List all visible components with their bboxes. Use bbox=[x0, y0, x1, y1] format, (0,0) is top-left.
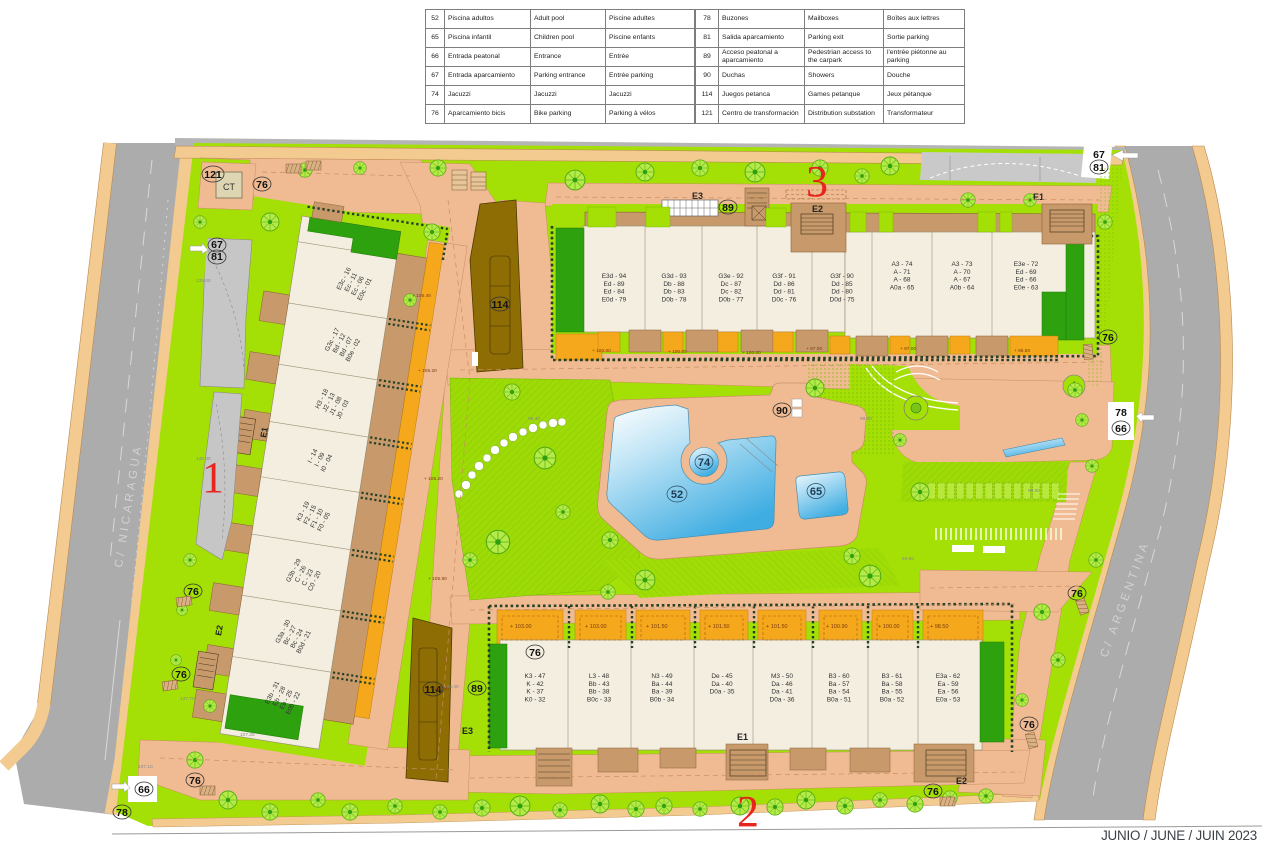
svg-text:+ 101.50: + 101.50 bbox=[646, 624, 668, 630]
svg-text:E2: E2 bbox=[812, 204, 823, 214]
svg-text:76: 76 bbox=[1102, 332, 1114, 344]
svg-text:99.40: 99.40 bbox=[528, 416, 540, 422]
svg-text:+ 98.50: + 98.50 bbox=[930, 624, 949, 630]
svg-text:76: 76 bbox=[529, 647, 541, 659]
svg-text:99.00: 99.00 bbox=[860, 416, 872, 422]
svg-text:67: 67 bbox=[1093, 149, 1105, 161]
svg-text:78: 78 bbox=[116, 807, 128, 819]
svg-text:+ 100.00: + 100.00 bbox=[878, 624, 900, 630]
svg-text:M3 - 50Da - 46Da - 41D0a - 36: M3 - 50Da - 46Da - 41D0a - 36 bbox=[770, 673, 795, 703]
svg-text:N3 - 49Ba - 44Ba - 39B0b - 34: N3 - 49Ba - 44Ba - 39B0b - 34 bbox=[650, 673, 675, 703]
svg-text:+ 103.00: + 103.00 bbox=[585, 624, 607, 630]
svg-text:90: 90 bbox=[776, 405, 788, 417]
svg-text:99.00: 99.00 bbox=[1028, 488, 1040, 494]
svg-text:E3: E3 bbox=[462, 726, 473, 736]
svg-text:+ 100.90: + 100.90 bbox=[826, 624, 848, 630]
svg-text:+ 95.50: + 95.50 bbox=[1014, 348, 1030, 354]
svg-text:+ 105.40: + 105.40 bbox=[412, 293, 431, 299]
svg-text:E3: E3 bbox=[692, 191, 703, 201]
svg-text:76: 76 bbox=[927, 786, 939, 798]
svg-text:+ 100.00: + 100.00 bbox=[668, 349, 687, 355]
svg-text:G3d - 93Db - 88Db - 83D0b - 78: G3d - 93Db - 88Db - 83D0b - 78 bbox=[661, 273, 687, 303]
svg-text:K3 - 47K - 42K - 37K0 - 32: K3 - 47K - 42K - 37K0 - 32 bbox=[525, 673, 546, 703]
svg-text:+ 100.00: + 100.00 bbox=[592, 348, 611, 354]
svg-text:E3e - 72Ed - 69Ed - 66E0e - 63: E3e - 72Ed - 69Ed - 66E0e - 63 bbox=[1014, 261, 1039, 291]
svg-text:G3f - 91Dd - 86Dd - 81D0c - 76: G3f - 91Dd - 86Dd - 81D0c - 76 bbox=[772, 273, 797, 303]
svg-text:137.10: 137.10 bbox=[138, 764, 153, 770]
svg-text:B3 - 60Ba - 57Ba - 54B0a - 51: B3 - 60Ba - 57Ba - 54B0a - 51 bbox=[827, 673, 852, 703]
svg-text:107.25: 107.25 bbox=[240, 732, 255, 738]
svg-text:B3 - 61Ba - 58Ba - 55B0a - 52: B3 - 61Ba - 58Ba - 55B0a - 52 bbox=[880, 673, 905, 703]
svg-text:121: 121 bbox=[204, 169, 222, 181]
svg-text:G3e - 92Dc - 87Dc - 82D0b - 77: G3e - 92Dc - 87Dc - 82D0b - 77 bbox=[718, 273, 744, 303]
svg-text:76: 76 bbox=[1071, 588, 1083, 600]
svg-text:+ 101.50: + 101.50 bbox=[708, 624, 730, 630]
svg-text:E3d - 94Ed - 89Ed - 84E0d - 79: E3d - 94Ed - 89Ed - 84E0d - 79 bbox=[602, 273, 627, 303]
svg-text:81: 81 bbox=[211, 251, 223, 263]
svg-text:2: 2 bbox=[737, 787, 759, 836]
svg-text:89: 89 bbox=[471, 683, 483, 695]
svg-text:+ 103.00: + 103.00 bbox=[510, 624, 532, 630]
svg-text:89: 89 bbox=[722, 202, 734, 214]
svg-text:76: 76 bbox=[256, 179, 268, 191]
svg-text:135.00: 135.00 bbox=[196, 278, 211, 284]
svg-text:135.00: 135.00 bbox=[196, 456, 211, 462]
svg-text:74: 74 bbox=[698, 457, 711, 469]
svg-text:+ 105.80: + 105.80 bbox=[428, 576, 447, 582]
svg-text:+ 97.00: + 97.00 bbox=[900, 346, 916, 352]
svg-text:E2: E2 bbox=[213, 624, 225, 636]
svg-text:CT: CT bbox=[223, 182, 235, 192]
svg-text:67: 67 bbox=[211, 239, 223, 251]
svg-text:66: 66 bbox=[138, 784, 150, 796]
svg-text:76: 76 bbox=[1023, 719, 1035, 731]
svg-text:52: 52 bbox=[671, 489, 683, 501]
svg-text:+ 105.20: + 105.20 bbox=[424, 476, 443, 482]
svg-text:104.30: 104.30 bbox=[444, 684, 459, 690]
svg-text:78: 78 bbox=[1115, 407, 1127, 419]
svg-text:137.70: 137.70 bbox=[180, 696, 195, 702]
svg-text:65: 65 bbox=[810, 486, 822, 498]
svg-text:+ 97.00: + 97.00 bbox=[806, 346, 822, 352]
svg-text:+ 101.50: + 101.50 bbox=[766, 624, 788, 630]
svg-text:+ 105.20: + 105.20 bbox=[418, 368, 437, 374]
svg-text:94.80: 94.80 bbox=[902, 556, 914, 562]
svg-text:66: 66 bbox=[1115, 423, 1127, 435]
svg-text:114: 114 bbox=[492, 299, 509, 311]
svg-text:E3a - 62Ea - 59Ea - 56E0a - 53: E3a - 62Ea - 59Ea - 56E0a - 53 bbox=[936, 673, 961, 703]
svg-text:De - 45Da - 40D0a - 35: De - 45Da - 40D0a - 35 bbox=[710, 673, 735, 696]
svg-text:JUNIO / JUNE / JUIN 2023: JUNIO / JUNE / JUIN 2023 bbox=[1101, 828, 1257, 843]
svg-text:+ 100.00: + 100.00 bbox=[742, 350, 761, 356]
svg-text:E2: E2 bbox=[956, 776, 967, 786]
svg-text:E1: E1 bbox=[1033, 192, 1044, 202]
svg-text:G3f - 90Dd - 85Dd - 80D0d - 75: G3f - 90Dd - 85Dd - 80D0d - 75 bbox=[830, 273, 855, 303]
svg-text:76: 76 bbox=[189, 775, 201, 787]
svg-text:L3 - 48Bb - 43Bb - 38B0c - 33: L3 - 48Bb - 43Bb - 38B0c - 33 bbox=[587, 673, 612, 703]
svg-text:81: 81 bbox=[1093, 162, 1105, 174]
svg-text:76: 76 bbox=[175, 669, 187, 681]
svg-text:E1: E1 bbox=[258, 426, 270, 438]
svg-text:E1: E1 bbox=[737, 732, 748, 742]
